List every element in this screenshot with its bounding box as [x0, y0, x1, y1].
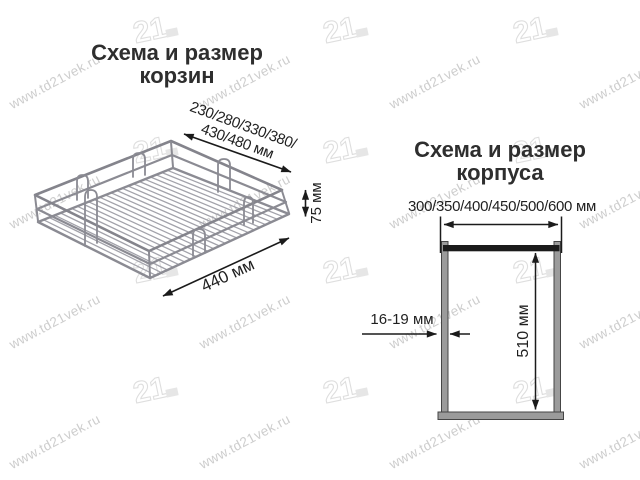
cabinet-bottom-panel [438, 412, 564, 420]
basket-height-label: 75 мм [309, 182, 326, 223]
basket-wire [55, 215, 167, 270]
cabinet-left-panel [442, 242, 449, 413]
cabinet-right-panel [554, 242, 561, 413]
basket-wire [89, 202, 203, 254]
cabinet-height-label: 510 мм [515, 304, 533, 357]
basket-title-line1: Схема и размер [91, 41, 263, 64]
cabinet-width-label: 300/350/400/450/500/600 мм [408, 199, 596, 216]
cabinet-title-line1: Схема и размер [414, 138, 586, 161]
basket-section-title: Схема и размер корзин [91, 41, 263, 87]
basket-wire [94, 200, 208, 252]
panel-thickness-label: 16-19 мм [370, 312, 433, 329]
cabinet-top-rail [443, 245, 560, 251]
basket-wire [83, 204, 196, 257]
diagram-canvas: www.td21vek.ru 21 [0, 0, 640, 480]
cabinet-title-line2: корпуса [414, 161, 586, 184]
basket-wire [49, 218, 161, 273]
basket-wire [61, 213, 174, 267]
cabinet-section-title: Схема и размер корпуса [414, 138, 586, 184]
basket-title-line2: корзин [91, 64, 263, 87]
